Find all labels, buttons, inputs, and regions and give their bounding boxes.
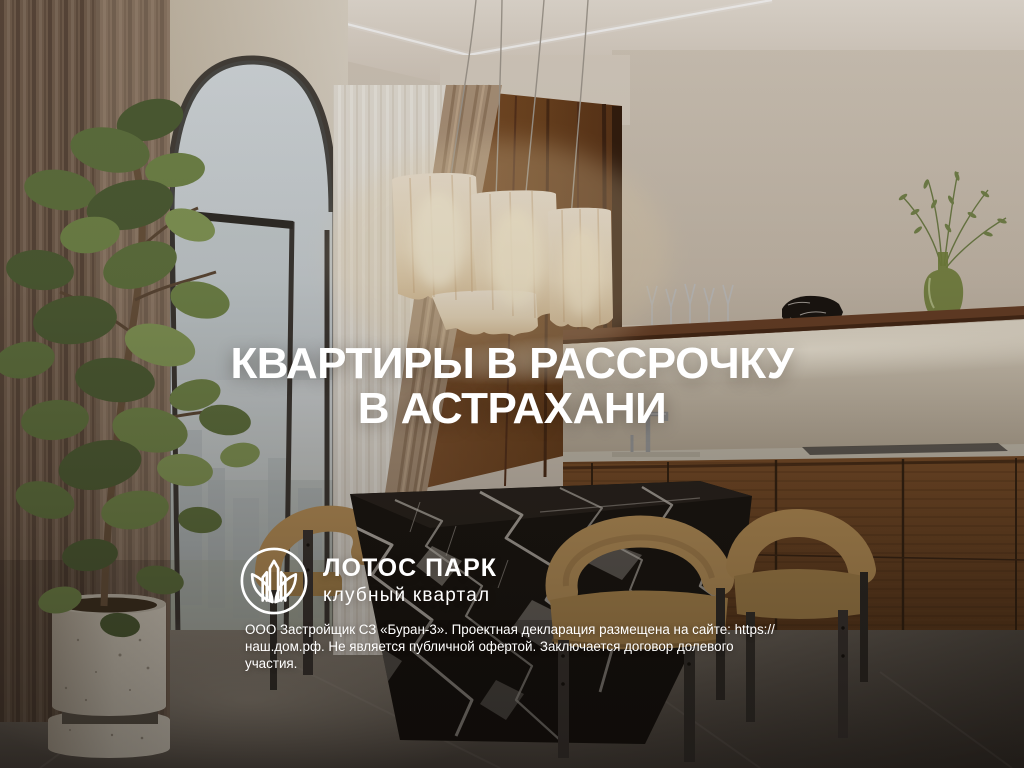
brand-tagline: клубный квартал	[323, 585, 497, 607]
headline-line2: В АСТРАХАНИ	[0, 386, 1024, 431]
brand-name: ЛОТОС ПАРК	[323, 555, 497, 581]
ad-banner: КВАРТИРЫ В РАССРОЧКУ В АСТРАХАНИ ЛОТОС П…	[0, 0, 1024, 768]
headline-line1: КВАРТИРЫ В РАССРОЧКУ	[0, 341, 1024, 386]
brand-logo: ЛОТОС ПАРК клубный квартал	[238, 545, 497, 617]
sink	[612, 452, 700, 457]
disclaimer-line1: ООО Застройщик СЗ «Буран-3». Проектная д…	[245, 622, 785, 639]
legal-disclaimer: ООО Застройщик СЗ «Буран-3». Проектная д…	[245, 622, 785, 672]
disclaimer-line2: наш.дом.рф. Не является публичной оферто…	[245, 639, 785, 673]
lotus-circle-buildings-icon	[238, 545, 310, 617]
headline: КВАРТИРЫ В РАССРОЧКУ В АСТРАХАНИ	[0, 341, 1024, 431]
brand-text: ЛОТОС ПАРК клубный квартал	[323, 555, 497, 607]
